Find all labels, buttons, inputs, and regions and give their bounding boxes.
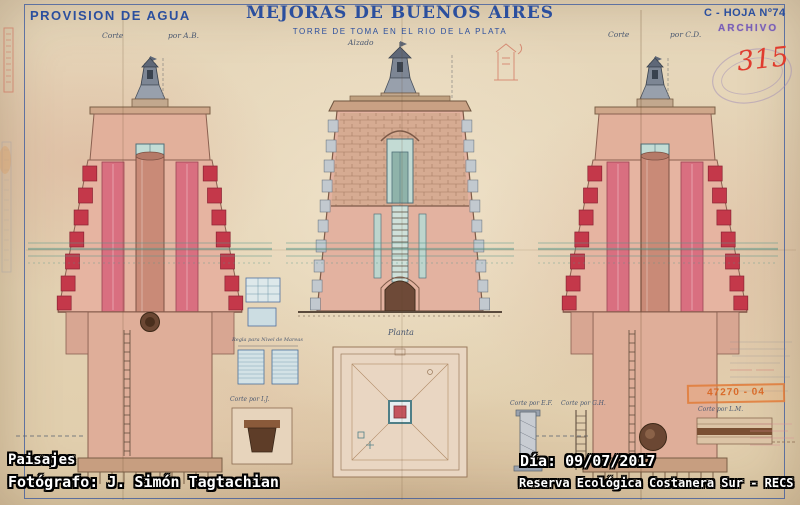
caption-date: Día: 09/07/2017	[520, 452, 655, 470]
sheet-title: MEJORAS DE BUENOS AIRES	[246, 3, 554, 23]
registry-stamp: 47270 - 04	[687, 383, 785, 404]
label-detail-lm: Corte por L.M.	[698, 406, 743, 413]
center-tower-elevation	[298, 41, 502, 316]
label-left-section-ref: por A.B.	[168, 31, 199, 40]
red-pencil-sketch	[494, 44, 522, 80]
label-tide-gauge: Regla para Nivel de Mareas	[232, 337, 303, 343]
archival-drawing-photo: PROVISION DE AGUA MEJORAS DE BUENOS AIRE…	[0, 0, 800, 505]
caption-location: Reserva Ecológica Costanera Sur - RECS	[519, 476, 794, 490]
technical-drawing	[0, 0, 800, 505]
archivo-stamp: ARCHIVO	[718, 23, 778, 34]
plan-drawing	[333, 347, 467, 477]
label-center-elevation: Alzado	[348, 38, 374, 47]
label-right-section-ref: por C.D.	[670, 30, 701, 39]
left-edge-stamps	[0, 28, 13, 272]
label-detail-ef: Corte por E.F.	[510, 400, 553, 407]
label-right-section: Corte	[608, 30, 629, 39]
left-title: PROVISION DE AGUA	[30, 8, 191, 23]
sheet-number: C - HOJA Nº74	[704, 7, 786, 19]
sheet-subtitle: TORRE DE TOMA EN EL RIO DE LA PLATA	[293, 27, 508, 36]
caption-photographer: Fotógrafo: J. Simón Tagtachian	[8, 473, 279, 491]
label-detail-gh: Corte por G.H.	[561, 400, 606, 407]
handwritten-number: 315	[736, 41, 791, 77]
left-tower-section	[16, 56, 243, 484]
label-detail-ij: Corte por I.J.	[230, 396, 269, 403]
label-left-section: Corte	[102, 31, 123, 40]
label-plan: Planta	[388, 328, 414, 337]
caption-album: Paisajes	[8, 452, 75, 468]
